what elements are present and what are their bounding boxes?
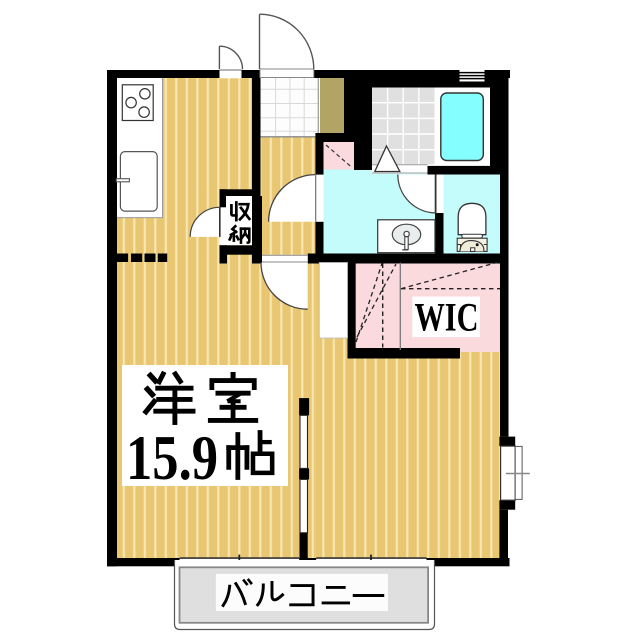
svg-text:WIC: WIC	[415, 295, 479, 340]
svg-text:15.9: 15.9	[126, 422, 218, 493]
